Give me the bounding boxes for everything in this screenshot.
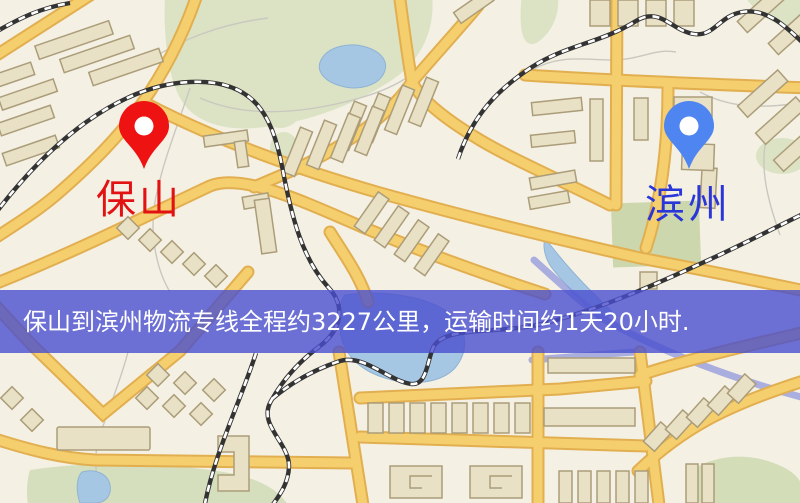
origin-city-label: 保山 <box>96 177 182 223</box>
map-viewport: 保山 滨州 保山到滨州物流专线全程约3227公里，运输时间约1天20小时. <box>0 0 800 503</box>
route-info-banner: 保山到滨州物流专线全程约3227公里，运输时间约1天20小时. <box>0 290 800 353</box>
route-info-text: 保山到滨州物流专线全程约3227公里，运输时间约1天20小时. <box>23 308 690 336</box>
origin-pin-hole <box>135 117 154 136</box>
destination-city-label: 滨州 <box>645 182 731 228</box>
destination-pin-hole <box>680 117 699 136</box>
map-canvas[interactable]: 保山 滨州 保山到滨州物流专线全程约3227公里，运输时间约1天20小时. <box>0 0 800 503</box>
